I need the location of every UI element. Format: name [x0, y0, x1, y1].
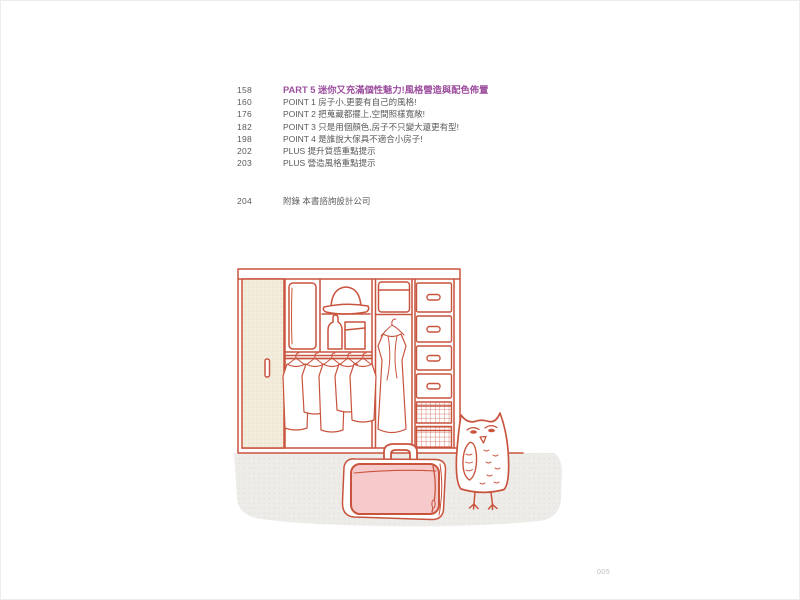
- toc-entry-row: 202 PLUS 提升質感重點提示: [237, 145, 488, 157]
- drawer-handle: [427, 356, 440, 362]
- toc-part-row: 158 PART 5 迷你又充滿個性魅力!風格營造與配色佈置: [237, 84, 488, 96]
- toc-page-number: 204: [237, 195, 283, 207]
- shelf-box: [379, 282, 410, 312]
- owl-eye: [470, 430, 477, 434]
- toc-entry-title: PLUS 營造風格重點提示: [283, 157, 376, 169]
- door-handle: [265, 359, 270, 377]
- wardrobe-illustration: [228, 262, 578, 532]
- toc-entry-title: POINT 1 房子小,更要有自己的風格!: [283, 96, 417, 108]
- toc-page-number: 202: [237, 145, 283, 157]
- drawer-handle: [427, 384, 440, 390]
- toc-appendix-title: 附錄 本書諮詢設計公司: [283, 195, 370, 207]
- zipper-pull: [432, 500, 435, 508]
- toc-entry-title: POINT 2 把蒐藏都擺上,空間照樣寬敞!: [283, 108, 425, 120]
- toc-entry-row: 182 POINT 3 只是用個顏色,房子不只變大還更有型!: [237, 121, 488, 133]
- owl-wing: [463, 442, 477, 480]
- wire-basket: [417, 402, 452, 423]
- wire-basket: [417, 427, 452, 448]
- toc-entry-title: POINT 3 只是用個顏色,房子不只變大還更有型!: [283, 121, 459, 133]
- toc-entry-row: 176 POINT 2 把蒐藏都擺上,空間照樣寬敞!: [237, 108, 488, 120]
- toc-entry-title: POINT 4 是誰說大傢具不適合小房子!: [283, 133, 423, 145]
- wardrobe-illustration-svg: [228, 262, 578, 532]
- toc-page-number: 182: [237, 121, 283, 133]
- toc-page-number: 158: [237, 84, 283, 96]
- long-dress: [378, 334, 406, 433]
- toc-part-title: PART 5 迷你又充滿個性魅力!風格營造與配色佈置: [283, 84, 488, 96]
- toc-page-number: 176: [237, 108, 283, 120]
- toc-entry-row: 160 POINT 1 房子小,更要有自己的風格!: [237, 96, 488, 108]
- table-of-contents: 158 PART 5 迷你又充滿個性魅力!風格營造與配色佈置 160 POINT…: [237, 84, 488, 208]
- toc-entry-row: 203 PLUS 營造風格重點提示: [237, 157, 488, 169]
- toc-entry-title: PLUS 提升質感重點提示: [283, 145, 376, 157]
- folio-page-number: 005: [597, 569, 610, 576]
- drawer-handle: [427, 295, 440, 301]
- drawer-column: [417, 283, 452, 448]
- sliding-door: [242, 279, 284, 448]
- storage-box: [345, 322, 365, 349]
- toc-entry-row: 198 POINT 4 是誰說大傢具不適合小房子!: [237, 133, 488, 145]
- toc-appendix-row: 204 附錄 本書諮詢設計公司: [237, 195, 488, 207]
- drawer-handle: [427, 327, 440, 333]
- folded-duvet: [289, 283, 316, 349]
- bag-body: [351, 464, 439, 514]
- toc-page-number: 203: [237, 157, 283, 169]
- book-page: { "page": { "folio": "005" }, "toc": { "…: [0, 0, 800, 600]
- toc-page-number: 160: [237, 96, 283, 108]
- owl-eye: [488, 429, 495, 433]
- toc-page-number: 198: [237, 133, 283, 145]
